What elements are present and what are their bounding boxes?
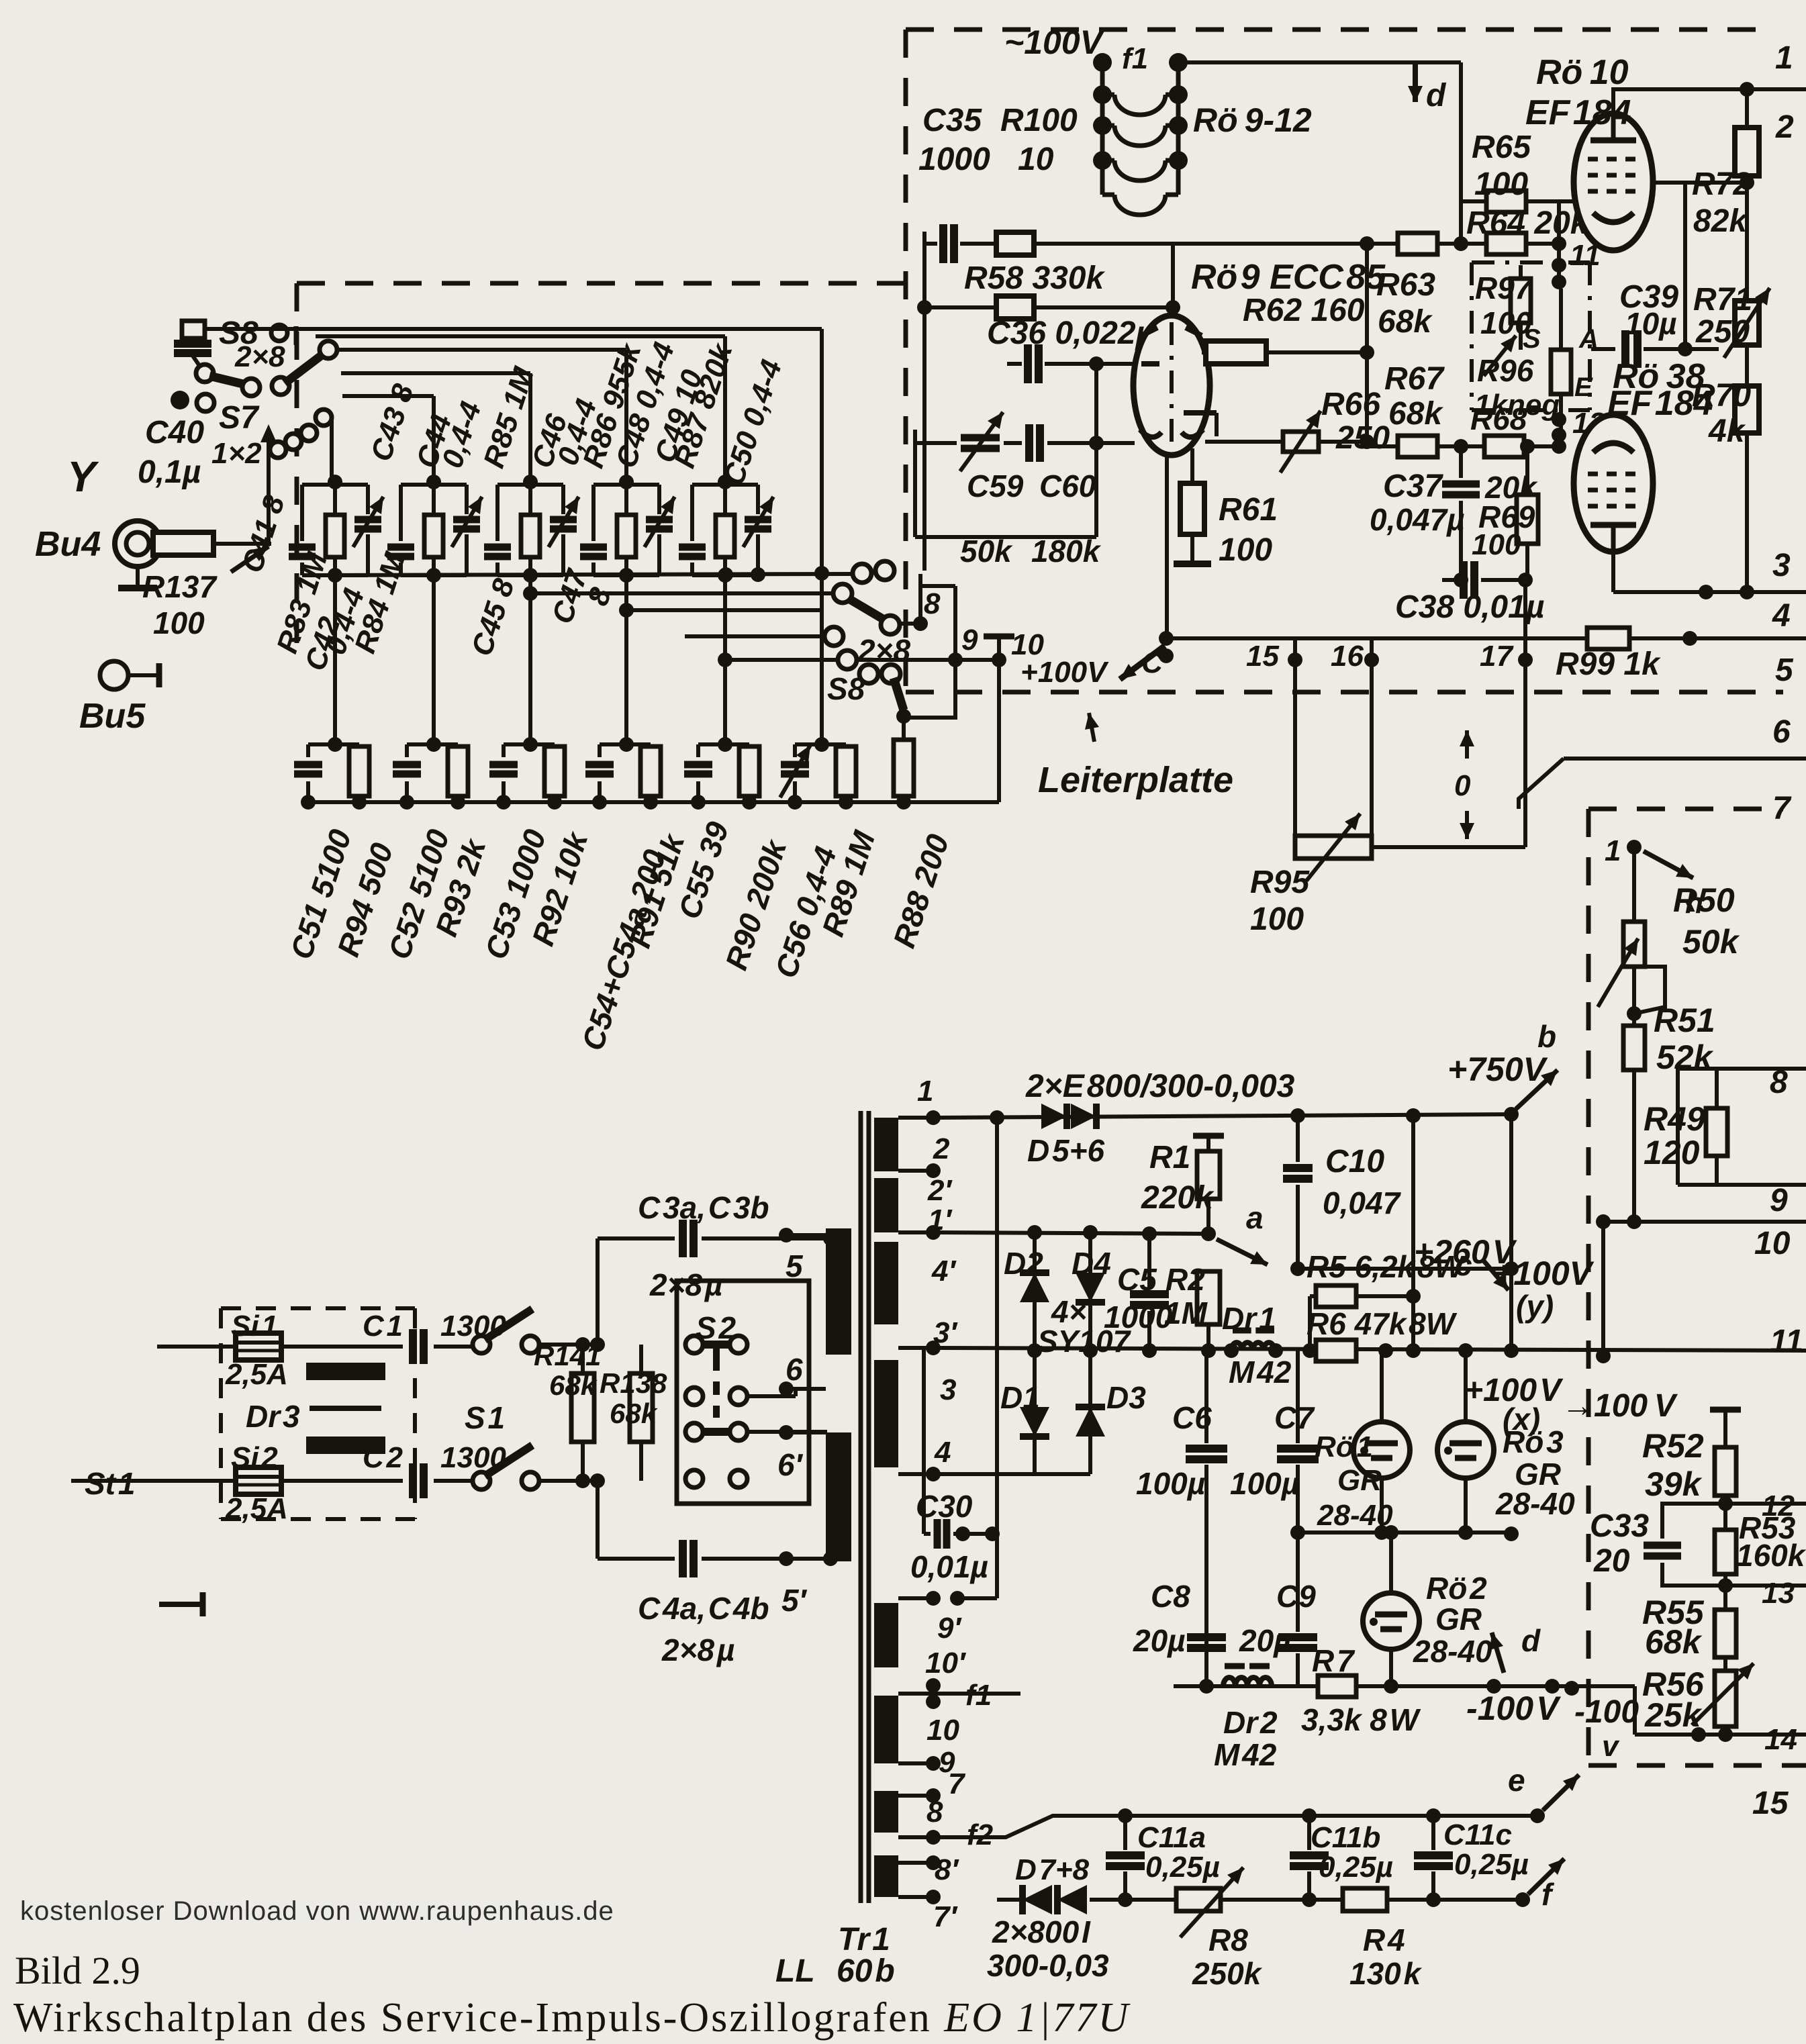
svg-text:Tr 1: Tr 1 bbox=[838, 1922, 890, 1957]
svg-text:R51: R51 bbox=[1654, 1002, 1715, 1039]
svg-text:E: E bbox=[1574, 373, 1593, 402]
svg-text:1×2: 1×2 bbox=[211, 437, 262, 470]
svg-text:GR: GR bbox=[1435, 1602, 1482, 1637]
svg-text:25k: 25k bbox=[1644, 1696, 1703, 1734]
svg-text:120: 120 bbox=[1644, 1134, 1700, 1171]
svg-text:~100V: ~100V bbox=[1004, 23, 1105, 61]
svg-text:4k: 4k bbox=[1708, 413, 1746, 449]
svg-text:2′: 2′ bbox=[927, 1174, 953, 1207]
svg-text:R68: R68 bbox=[1470, 401, 1527, 436]
svg-text:R62 160: R62 160 bbox=[1243, 293, 1365, 328]
svg-text:8′: 8′ bbox=[935, 1853, 959, 1886]
svg-text:1: 1 bbox=[1775, 40, 1793, 76]
svg-text:R61: R61 bbox=[1219, 492, 1278, 528]
svg-text:7: 7 bbox=[1772, 791, 1792, 826]
svg-text:15: 15 bbox=[1246, 640, 1279, 673]
svg-text:7′: 7′ bbox=[933, 1900, 958, 1933]
svg-text:5′: 5′ bbox=[781, 1583, 808, 1618]
svg-text:Rö 1: Rö 1 bbox=[1315, 1430, 1373, 1463]
svg-text:2,5A: 2,5A bbox=[225, 1492, 288, 1525]
svg-text:+750V: +750V bbox=[1447, 1051, 1548, 1088]
svg-text:C33: C33 bbox=[1590, 1508, 1649, 1544]
svg-text:C37: C37 bbox=[1383, 469, 1443, 504]
svg-text:2×8: 2×8 bbox=[857, 633, 910, 668]
svg-text:68k: 68k bbox=[1388, 396, 1443, 432]
svg-text:2: 2 bbox=[1775, 109, 1794, 145]
svg-text:250: 250 bbox=[1335, 420, 1390, 456]
svg-text:9: 9 bbox=[961, 624, 978, 656]
svg-text:68k: 68k bbox=[610, 1398, 659, 1429]
svg-text:R63: R63 bbox=[1376, 267, 1435, 303]
svg-text:14: 14 bbox=[1764, 1723, 1797, 1756]
svg-text:100µ: 100µ bbox=[1230, 1466, 1299, 1501]
svg-text:5: 5 bbox=[1775, 652, 1794, 688]
svg-text:2×800 I: 2×800 I bbox=[992, 1914, 1091, 1949]
svg-text:R66: R66 bbox=[1321, 387, 1380, 422]
svg-text:+100V: +100V bbox=[1020, 656, 1109, 689]
svg-text:R 4: R 4 bbox=[1363, 1923, 1405, 1957]
svg-text:0,25µ: 0,25µ bbox=[1319, 1851, 1393, 1884]
svg-text:68k: 68k bbox=[549, 1369, 598, 1401]
svg-text:S 1: S 1 bbox=[465, 1400, 505, 1435]
svg-text:3′: 3′ bbox=[933, 1316, 958, 1349]
svg-text:1: 1 bbox=[1605, 834, 1621, 867]
svg-text:100: 100 bbox=[1472, 528, 1521, 561]
svg-text:C7: C7 bbox=[1274, 1400, 1315, 1435]
svg-text:C9: C9 bbox=[1276, 1579, 1316, 1614]
svg-text:R138: R138 bbox=[600, 1367, 667, 1399]
svg-text:6: 6 bbox=[786, 1352, 803, 1387]
svg-text:3: 3 bbox=[940, 1373, 956, 1406]
svg-text:LL: LL bbox=[775, 1953, 815, 1989]
svg-text:R70: R70 bbox=[1692, 378, 1751, 413]
svg-text:50k: 50k bbox=[960, 534, 1013, 569]
svg-text:28-40: 28-40 bbox=[1413, 1634, 1492, 1669]
svg-text:R71: R71 bbox=[1693, 282, 1752, 318]
svg-text:R58 330k: R58 330k bbox=[964, 260, 1105, 296]
svg-text:68k: 68k bbox=[1378, 304, 1433, 340]
svg-text:C 4a, C 4b: C 4a, C 4b bbox=[638, 1591, 769, 1626]
svg-text:4: 4 bbox=[934, 1436, 951, 1469]
svg-text:39k: 39k bbox=[1645, 1465, 1703, 1503]
svg-text:0,25µ: 0,25µ bbox=[1454, 1848, 1529, 1881]
svg-text:C8: C8 bbox=[1151, 1579, 1190, 1614]
svg-text:C10: C10 bbox=[1325, 1144, 1384, 1179]
svg-text:Bu4: Bu4 bbox=[35, 525, 101, 564]
svg-text:D 5+6: D 5+6 bbox=[1027, 1133, 1105, 1168]
svg-text:Si 1: Si 1 bbox=[231, 1310, 278, 1343]
svg-text:R96: R96 bbox=[1477, 353, 1534, 388]
svg-text:15: 15 bbox=[1752, 1786, 1789, 1821]
svg-text:R6 47k 8W: R6 47k 8W bbox=[1306, 1306, 1458, 1341]
svg-text:28-40: 28-40 bbox=[1495, 1486, 1575, 1521]
svg-text:10: 10 bbox=[1754, 1226, 1791, 1261]
svg-text:Dr 1: Dr 1 bbox=[1222, 1301, 1276, 1336]
svg-text:C11c: C11c bbox=[1443, 1818, 1512, 1851]
svg-text:Bild 2.9: Bild 2.9 bbox=[15, 1949, 140, 1992]
svg-text:17: 17 bbox=[1480, 640, 1514, 673]
svg-text:0,047µ: 0,047µ bbox=[1370, 502, 1465, 537]
svg-text:C5: C5 bbox=[1117, 1262, 1157, 1297]
svg-text:Rö 2: Rö 2 bbox=[1426, 1571, 1487, 1606]
svg-text:R99 1k: R99 1k bbox=[1556, 646, 1661, 682]
svg-text:C40: C40 bbox=[145, 415, 204, 450]
svg-text:kostenloser Download von www.r: kostenloser Download von www.raupenhaus.… bbox=[20, 1896, 614, 1926]
svg-text:3,3k 8 W: 3,3k 8 W bbox=[1301, 1702, 1421, 1737]
svg-text:2×E 800/300-0,003: 2×E 800/300-0,003 bbox=[1025, 1069, 1295, 1104]
svg-text:C 1: C 1 bbox=[363, 1310, 403, 1343]
svg-text:250: 250 bbox=[1695, 314, 1750, 350]
svg-text:C38 0,01µ: C38 0,01µ bbox=[1395, 589, 1544, 625]
svg-text:Wirkschaltplan des Service-Imp: Wirkschaltplan des Service-Impuls-Oszill… bbox=[13, 1995, 1131, 2041]
svg-text:Rö 9 ECC 85: Rö 9 ECC 85 bbox=[1191, 258, 1386, 297]
svg-text:2×8 µ: 2×8 µ bbox=[649, 1267, 722, 1302]
svg-text:10µ: 10µ bbox=[1625, 306, 1677, 341]
svg-text:D3: D3 bbox=[1106, 1380, 1146, 1415]
svg-text:9′: 9′ bbox=[937, 1612, 962, 1645]
svg-text:GR: GR bbox=[1337, 1464, 1382, 1497]
svg-text:Leiterplatte: Leiterplatte bbox=[1038, 760, 1233, 800]
svg-text:100: 100 bbox=[153, 605, 205, 640]
svg-text:S: S bbox=[1523, 324, 1541, 354]
svg-text:St 1: St 1 bbox=[85, 1466, 135, 1501]
svg-text:2,5A: 2,5A bbox=[225, 1358, 288, 1391]
svg-text:Si 2: Si 2 bbox=[231, 1441, 278, 1474]
svg-text:68k: 68k bbox=[1645, 1623, 1703, 1661]
svg-text:82k: 82k bbox=[1693, 203, 1748, 239]
svg-text:20µ: 20µ bbox=[1133, 1623, 1186, 1658]
svg-text:R65: R65 bbox=[1472, 130, 1531, 165]
svg-text:R 7: R 7 bbox=[1312, 1643, 1356, 1678]
svg-text:13: 13 bbox=[1762, 1577, 1795, 1610]
svg-text:50k: 50k bbox=[1682, 923, 1740, 961]
svg-text:R52: R52 bbox=[1642, 1427, 1704, 1465]
svg-text:R137: R137 bbox=[142, 569, 218, 604]
svg-text:7: 7 bbox=[948, 1767, 966, 1800]
svg-text:Y: Y bbox=[67, 452, 99, 501]
svg-text:100: 100 bbox=[1474, 166, 1528, 202]
svg-text:28-40: 28-40 bbox=[1317, 1499, 1393, 1532]
svg-text:6′: 6′ bbox=[777, 1447, 804, 1482]
svg-text:6: 6 bbox=[1772, 714, 1791, 750]
svg-text:10: 10 bbox=[1018, 142, 1054, 177]
svg-text:20µ: 20µ bbox=[1239, 1623, 1292, 1658]
svg-text:20: 20 bbox=[1593, 1543, 1630, 1579]
svg-text:C11b: C11b bbox=[1311, 1821, 1380, 1854]
svg-text:130 k: 130 k bbox=[1349, 1956, 1423, 1991]
svg-text:60 b: 60 b bbox=[837, 1953, 895, 1989]
svg-text:220k: 220k bbox=[1141, 1180, 1215, 1216]
svg-text:f1: f1 bbox=[1122, 42, 1148, 75]
svg-text:v: v bbox=[1602, 1730, 1620, 1763]
svg-text:5: 5 bbox=[786, 1249, 804, 1283]
svg-text:Bu5: Bu5 bbox=[79, 697, 146, 736]
svg-text:0,01µ: 0,01µ bbox=[910, 1549, 988, 1584]
svg-text:8: 8 bbox=[926, 1796, 943, 1829]
svg-text:D1: D1 bbox=[1000, 1380, 1040, 1415]
svg-text:0: 0 bbox=[1454, 769, 1471, 802]
svg-text:R50: R50 bbox=[1673, 881, 1735, 919]
svg-text:+100V: +100V bbox=[1494, 1255, 1595, 1292]
svg-text:S8: S8 bbox=[827, 671, 865, 706]
svg-text:(y): (y) bbox=[1516, 1289, 1554, 1324]
svg-text:2: 2 bbox=[933, 1132, 950, 1165]
svg-text:8: 8 bbox=[1770, 1065, 1788, 1100]
svg-text:3: 3 bbox=[1772, 548, 1791, 583]
svg-text:R64 20k: R64 20k bbox=[1466, 205, 1590, 241]
svg-text:C6: C6 bbox=[1172, 1400, 1212, 1435]
svg-text:D 7+8: D 7+8 bbox=[1015, 1853, 1090, 1886]
svg-text:250k: 250k bbox=[1192, 1956, 1263, 1991]
svg-text:R49: R49 bbox=[1644, 1100, 1705, 1138]
svg-text:M 42: M 42 bbox=[1229, 1355, 1292, 1390]
svg-text:4: 4 bbox=[1772, 598, 1791, 634]
svg-text:100: 100 bbox=[1250, 902, 1304, 937]
svg-text:Dr 3: Dr 3 bbox=[246, 1399, 300, 1434]
svg-text:c: c bbox=[1455, 1247, 1472, 1282]
svg-text:10′: 10′ bbox=[925, 1647, 967, 1680]
svg-text:f2: f2 bbox=[967, 1818, 994, 1851]
svg-text:S7: S7 bbox=[219, 400, 260, 436]
svg-text:2×8: 2×8 bbox=[234, 340, 285, 373]
svg-text:M 42: M 42 bbox=[1214, 1737, 1277, 1772]
svg-text:R100: R100 bbox=[1000, 103, 1078, 138]
svg-text:SY107: SY107 bbox=[1037, 1324, 1132, 1359]
svg-text:4′: 4′ bbox=[931, 1255, 957, 1287]
svg-text:Rö 3: Rö 3 bbox=[1503, 1424, 1564, 1459]
svg-text:8: 8 bbox=[924, 587, 941, 620]
svg-text:R95: R95 bbox=[1250, 865, 1310, 900]
svg-text:0,25µ: 0,25µ bbox=[1145, 1851, 1220, 1884]
svg-text:C: C bbox=[1141, 646, 1163, 679]
svg-text:e: e bbox=[1508, 1763, 1525, 1798]
svg-text:300-0,03: 300-0,03 bbox=[987, 1948, 1109, 1983]
svg-text:16: 16 bbox=[1331, 640, 1364, 673]
svg-text:160k: 160k bbox=[1736, 1538, 1806, 1573]
svg-text:R97: R97 bbox=[1475, 271, 1533, 305]
svg-text:R2: R2 bbox=[1166, 1262, 1205, 1297]
svg-text:1: 1 bbox=[917, 1075, 933, 1108]
svg-text:D2: D2 bbox=[1004, 1246, 1043, 1281]
svg-text:Rö 9-12: Rö 9-12 bbox=[1193, 101, 1312, 139]
svg-text:b: b bbox=[1537, 1019, 1556, 1054]
svg-text:1000: 1000 bbox=[918, 142, 990, 177]
svg-text:Dr 2: Dr 2 bbox=[1223, 1705, 1278, 1740]
svg-text:Rö 10: Rö 10 bbox=[1536, 53, 1629, 92]
svg-text:100: 100 bbox=[1219, 532, 1272, 568]
svg-text:d: d bbox=[1426, 78, 1447, 113]
svg-text:D4: D4 bbox=[1072, 1246, 1111, 1281]
svg-text:R67: R67 bbox=[1384, 361, 1445, 397]
svg-text:a: a bbox=[1246, 1200, 1264, 1235]
svg-text:10: 10 bbox=[926, 1714, 959, 1747]
svg-text:-100 V: -100 V bbox=[1466, 1690, 1561, 1727]
svg-text:EF 184: EF 184 bbox=[1525, 93, 1631, 132]
svg-text:0,047: 0,047 bbox=[1323, 1185, 1402, 1220]
svg-text:R8: R8 bbox=[1208, 1923, 1248, 1957]
svg-text:d: d bbox=[1521, 1623, 1541, 1658]
svg-text:→100 V: →100 V bbox=[1562, 1388, 1678, 1424]
svg-text:C 2: C 2 bbox=[363, 1441, 403, 1474]
svg-text:11: 11 bbox=[1770, 1324, 1803, 1359]
svg-text:-100: -100 bbox=[1574, 1694, 1639, 1730]
svg-text:C 3a, C 3b: C 3a, C 3b bbox=[638, 1190, 769, 1225]
svg-text:C36 0,022µ: C36 0,022µ bbox=[987, 315, 1154, 351]
svg-text:0,1µ: 0,1µ bbox=[138, 454, 201, 490]
svg-text:100µ: 100µ bbox=[1136, 1466, 1205, 1501]
svg-text:C59: C59 bbox=[967, 469, 1024, 503]
svg-text:C30: C30 bbox=[916, 1489, 973, 1524]
svg-text:R1: R1 bbox=[1149, 1140, 1190, 1175]
svg-text:C35: C35 bbox=[922, 103, 982, 138]
svg-text:9: 9 bbox=[1770, 1183, 1788, 1218]
svg-text:2×8 µ: 2×8 µ bbox=[661, 1633, 734, 1667]
svg-text:C60: C60 bbox=[1039, 469, 1096, 503]
svg-text:180k: 180k bbox=[1031, 534, 1102, 569]
svg-text:C11a: C11a bbox=[1137, 1821, 1206, 1854]
